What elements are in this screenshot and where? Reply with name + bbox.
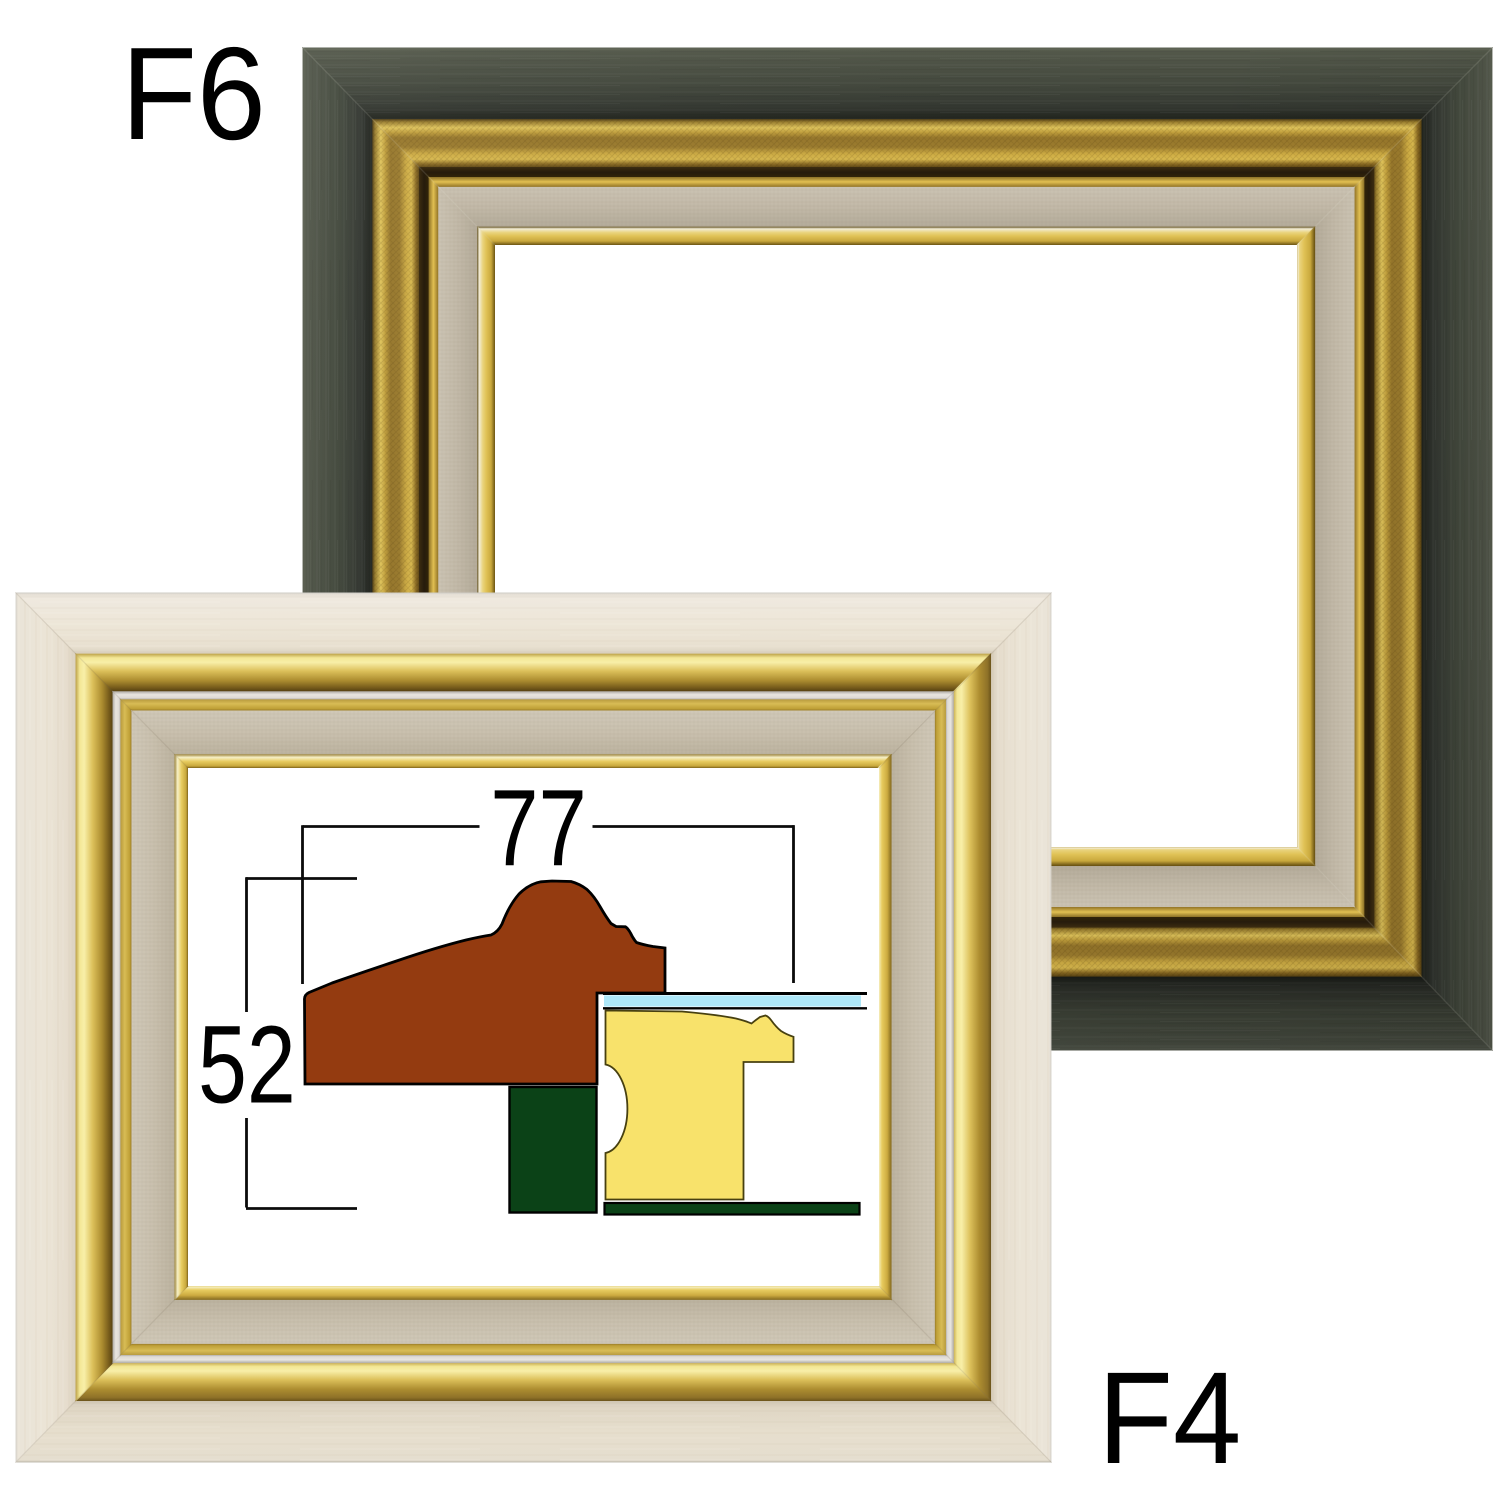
svg-text:77: 77 (490, 767, 587, 888)
svg-text:F4: F4 (1098, 1344, 1242, 1490)
svg-text:52: 52 (198, 1004, 296, 1127)
svg-text:F6: F6 (121, 20, 266, 167)
